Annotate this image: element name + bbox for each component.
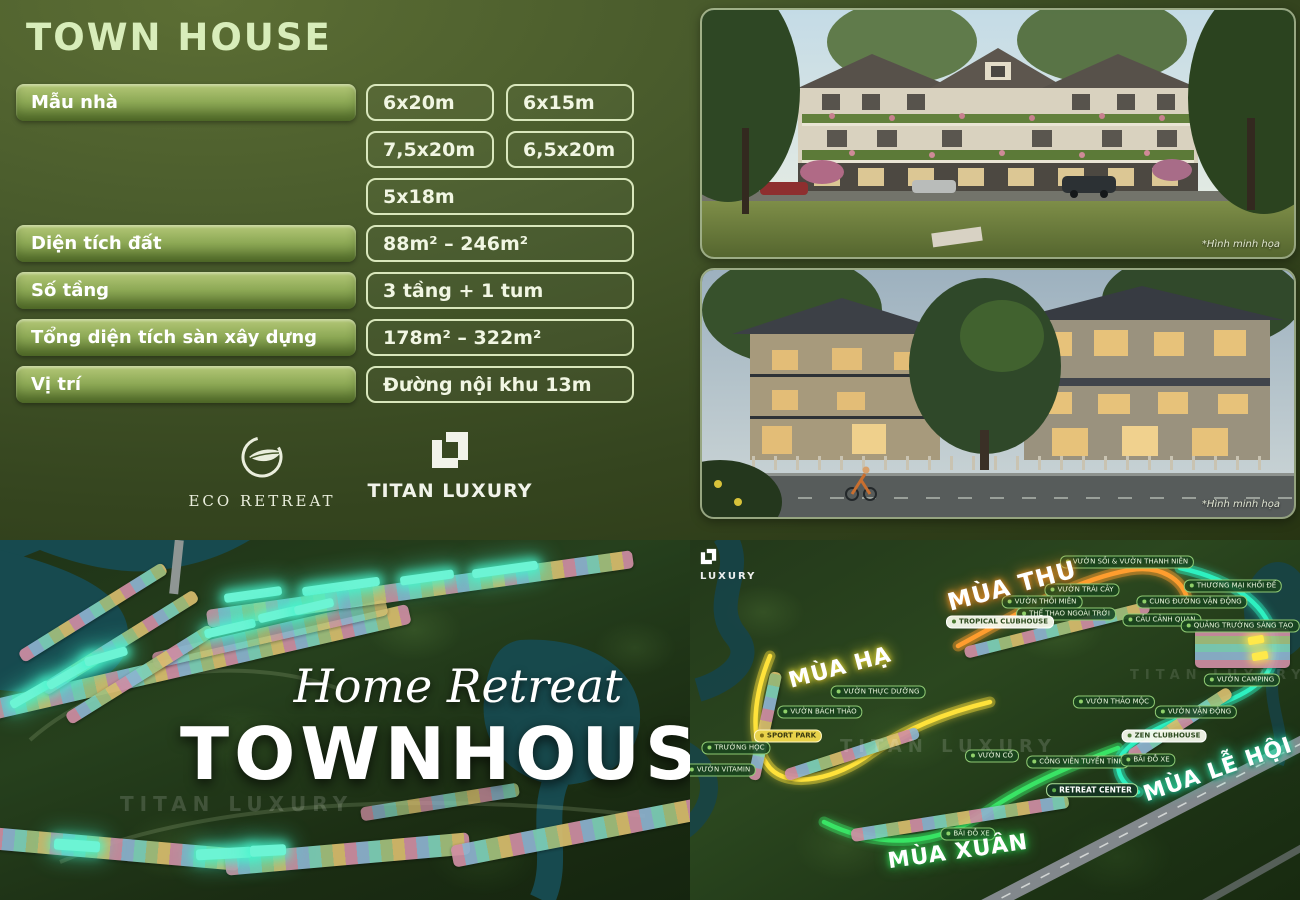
size-option: 5x18m [366, 178, 634, 215]
page-title: TOWN HOUSE [26, 16, 332, 59]
day-render-scene [702, 10, 1294, 257]
townhouse-building [798, 48, 1198, 191]
street [702, 476, 1294, 517]
masterplan-map-right: LUXURY TITAN LUXURY TITAN LUXURY VƯỜN SỒ… [690, 540, 1300, 900]
season-label: MÙA LỄ HỘI [1140, 733, 1295, 807]
curb [702, 473, 1294, 476]
season-labels-layer: MÙA HẠMÙA THUMÙA XUÂNMÙA LỄ HỘI [690, 540, 1300, 900]
spec-value-dien-tich: 88m² – 246m² [366, 225, 634, 262]
spec-panel: TOWN HOUSE Mẫu nhà Diện tích đất Số tầng… [0, 0, 1300, 540]
spec-label-mau-nha: Mẫu nhà [16, 84, 356, 121]
highlighted-block [250, 844, 287, 857]
brochure-page: TOWN HOUSE Mẫu nhà Diện tích đất Số tầng… [0, 0, 1300, 900]
script-title: Home Retreat [294, 659, 623, 713]
spec-label-vi-tri: Vị trí [16, 366, 356, 403]
spec-value-tong-san: 178m² – 322m² [366, 319, 634, 356]
eco-retreat-logo: ECO RETREAT [182, 430, 342, 510]
photo-caption: *Hình minh họa [1202, 239, 1280, 250]
townhouse-photo-day: *Hình minh họa [700, 8, 1296, 259]
size-option: 6,5x20m [506, 131, 634, 168]
season-label: MÙA XUÂN [886, 830, 1029, 874]
size-option: 6x20m [366, 84, 494, 121]
size-option: 7,5x20m [366, 131, 494, 168]
masterplan-map-left: TITAN LUXURY Home Retreat TOWNHOUSE [0, 540, 690, 900]
spec-label-tong-san: Tổng diện tích sàn xây dựng [16, 319, 356, 356]
titan-luxury-wordmark: TITAN LUXURY [360, 480, 540, 502]
photo-caption: *Hình minh họa [1202, 499, 1280, 510]
eco-leaf-icon [235, 430, 289, 484]
spec-value-vi-tri: Đường nội khu 13m [366, 366, 634, 403]
size-option: 6x15m [506, 84, 634, 121]
spec-label-dien-tich: Diện tích đất [16, 225, 356, 262]
balcony-planter-row [802, 150, 1194, 160]
dusk-render-scene [702, 270, 1294, 517]
titan-lt-icon [430, 430, 470, 470]
balcony-planter-row [802, 114, 1194, 123]
titan-luxury-logo: TITAN LUXURY [360, 430, 540, 502]
spec-label-so-tang: Số tầng [16, 272, 356, 309]
season-label: MÙA THU [944, 555, 1079, 616]
season-label: MÙA HẠ [786, 642, 894, 693]
townhouse-title: TOWNHOUSE [180, 712, 690, 796]
eco-retreat-wordmark: ECO RETREAT [182, 492, 342, 510]
townhouse-photo-dusk: *Hình minh họa [700, 268, 1296, 519]
spec-value-so-tang: 3 tầng + 1 tum [366, 272, 634, 309]
